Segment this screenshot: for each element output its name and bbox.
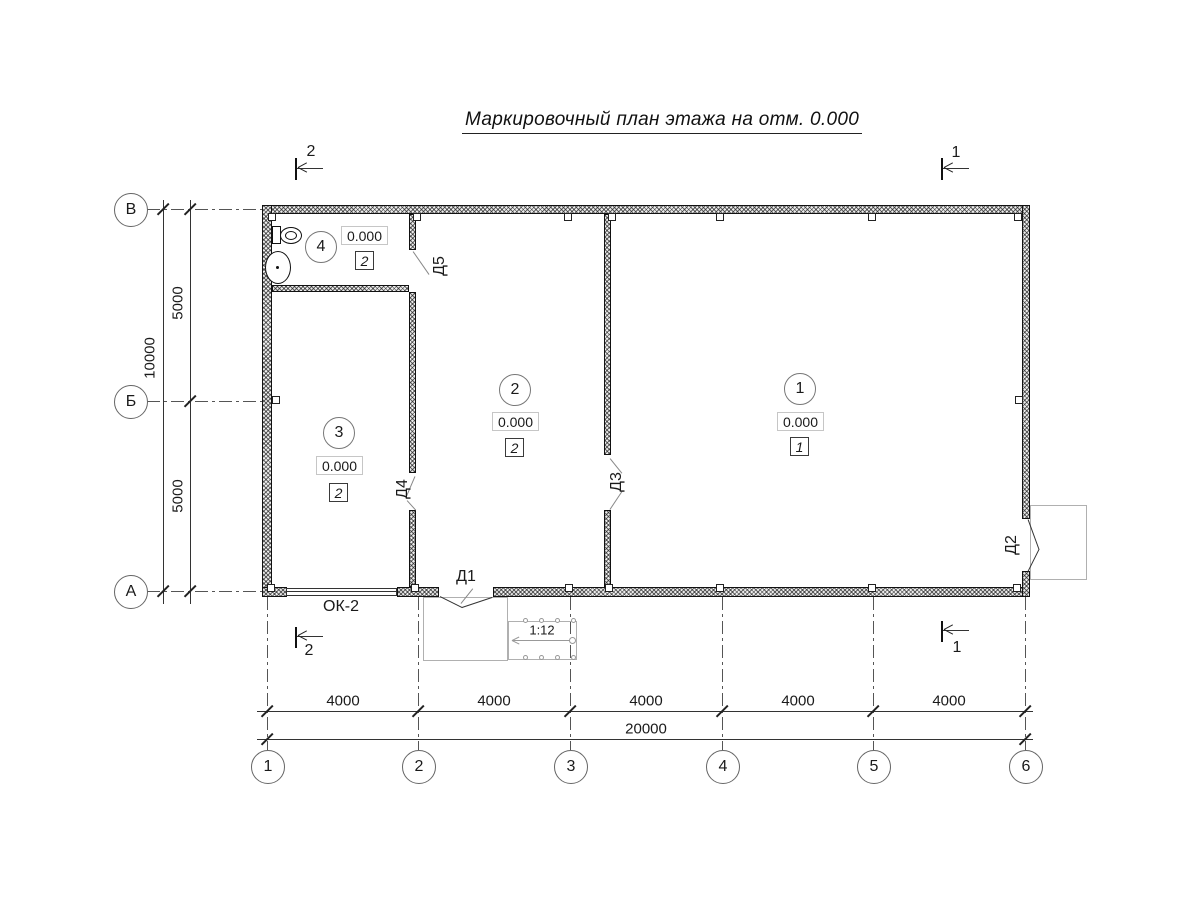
axis-circle-col-2: 2 xyxy=(402,750,436,784)
door-label-d4: Д4 xyxy=(394,479,412,499)
ramp-post xyxy=(571,618,576,623)
axis-line-col-5 xyxy=(873,597,874,750)
wall-exterior-top xyxy=(262,205,1030,214)
room-4-mark: 2 xyxy=(355,251,374,270)
room-3-mark: 2 xyxy=(329,483,348,502)
ramp-direction-arrow xyxy=(512,640,572,641)
ramp-post xyxy=(555,655,560,660)
axis-circle-col-3: 3 xyxy=(554,750,588,784)
ramp-post xyxy=(539,655,544,660)
axis-circle-col-6: 6 xyxy=(1009,750,1043,784)
drawing-title: Маркировочный план этажа на отм. 0.000 xyxy=(462,109,862,134)
wall-partition-1-lower xyxy=(409,510,416,587)
column-mark xyxy=(1014,213,1022,221)
entry-porch-right xyxy=(1030,505,1087,580)
section-label-2-top: 2 xyxy=(307,143,316,161)
wall-exterior-bottom-3 xyxy=(493,587,1030,597)
column-mark xyxy=(268,213,276,221)
column-mark xyxy=(868,213,876,221)
room-3-elevation: 0.000 xyxy=(316,456,363,475)
door-d5-leader xyxy=(413,251,430,275)
wall-exterior-right-lower xyxy=(1022,571,1030,597)
axis-circle-row-v: В xyxy=(114,193,148,227)
dim-label-5000-lower: 5000 xyxy=(170,479,187,512)
dim-line-vertical-total xyxy=(163,200,164,604)
dim-label-20000: 20000 xyxy=(623,721,669,738)
axis-circle-row-b: Б xyxy=(114,385,148,419)
room-number-2: 2 xyxy=(499,374,531,406)
axis-line-col-1 xyxy=(267,597,268,750)
room-2-elevation: 0.000 xyxy=(492,412,539,431)
dim-line-vertical-segments xyxy=(190,200,191,604)
dim-label-4000-4: 4000 xyxy=(779,693,816,710)
ramp-arrow-origin xyxy=(569,637,576,644)
room-1-mark: 1 xyxy=(790,437,809,456)
door-label-d1: Д1 xyxy=(454,568,478,586)
dim-label-4000-5: 4000 xyxy=(930,693,967,710)
room-1-elevation: 0.000 xyxy=(777,412,824,431)
dim-line-horizontal-total xyxy=(257,739,1033,740)
room-number-4: 4 xyxy=(305,231,337,263)
column-mark xyxy=(1013,584,1021,592)
room-4-elevation: 0.000 xyxy=(341,226,388,245)
column-mark xyxy=(565,584,573,592)
room-2-mark: 2 xyxy=(505,438,524,457)
section-mark-1-bottom-bar xyxy=(941,621,943,642)
axis-circle-col-1: 1 xyxy=(251,750,285,784)
section-mark-2-bottom-bar xyxy=(295,627,297,648)
window-ok2 xyxy=(286,588,397,596)
column-mark xyxy=(716,213,724,221)
toilet-bowl-inner-icon xyxy=(285,231,297,240)
section-label-1-top: 1 xyxy=(952,144,961,162)
dim-label-5000-upper: 5000 xyxy=(170,286,187,319)
section-label-1-bottom: 1 xyxy=(953,639,962,657)
room-number-3: 3 xyxy=(323,417,355,449)
sink-drain-icon xyxy=(276,266,279,269)
floor-plan: Маркировочный план этажа на отм. 0.000 5… xyxy=(0,0,1200,900)
column-mark xyxy=(716,584,724,592)
ramp-post xyxy=(523,655,528,660)
room-number-1: 1 xyxy=(784,373,816,405)
door-label-d2: Д2 xyxy=(1003,535,1021,555)
dim-line-horizontal-segments xyxy=(257,711,1033,712)
column-mark xyxy=(267,584,275,592)
axis-line-row-a xyxy=(147,591,262,592)
axis-line-col-2 xyxy=(418,597,419,750)
wall-partition-1-middle xyxy=(409,292,416,473)
wall-partition-2-lower xyxy=(604,510,611,587)
axis-circle-col-4: 4 xyxy=(706,750,740,784)
axis-line-col-6 xyxy=(1025,597,1026,750)
door-label-d5: Д5 xyxy=(431,256,449,276)
dim-label-4000-3: 4000 xyxy=(627,693,664,710)
axis-line-row-b xyxy=(147,401,272,402)
axis-circle-col-5: 5 xyxy=(857,750,891,784)
door-d3-leader xyxy=(610,491,623,510)
ramp-post xyxy=(571,655,576,660)
window-ok2-midline xyxy=(286,591,397,592)
axis-line-row-v xyxy=(147,209,262,210)
axis-circle-row-a: А xyxy=(114,575,148,609)
column-mark xyxy=(608,213,616,221)
section-label-2-bottom: 2 xyxy=(305,642,314,660)
axis-line-col-4 xyxy=(722,597,723,750)
column-mark xyxy=(1015,396,1023,404)
column-mark xyxy=(411,584,419,592)
column-mark xyxy=(605,584,613,592)
wall-exterior-right-upper xyxy=(1022,205,1030,519)
column-mark xyxy=(272,396,280,404)
dim-label-4000-1: 4000 xyxy=(324,693,361,710)
window-label: ОК-2 xyxy=(321,598,361,616)
dim-label-4000-2: 4000 xyxy=(475,693,512,710)
ramp-slope-label: 1:12 xyxy=(527,623,556,638)
door-label-d3: Д3 xyxy=(608,472,626,492)
wall-partition-room4 xyxy=(272,285,409,292)
column-mark xyxy=(564,213,572,221)
column-mark xyxy=(868,584,876,592)
wall-partition-2-upper xyxy=(604,214,611,455)
dim-label-10000: 10000 xyxy=(142,337,159,379)
column-mark xyxy=(413,213,421,221)
